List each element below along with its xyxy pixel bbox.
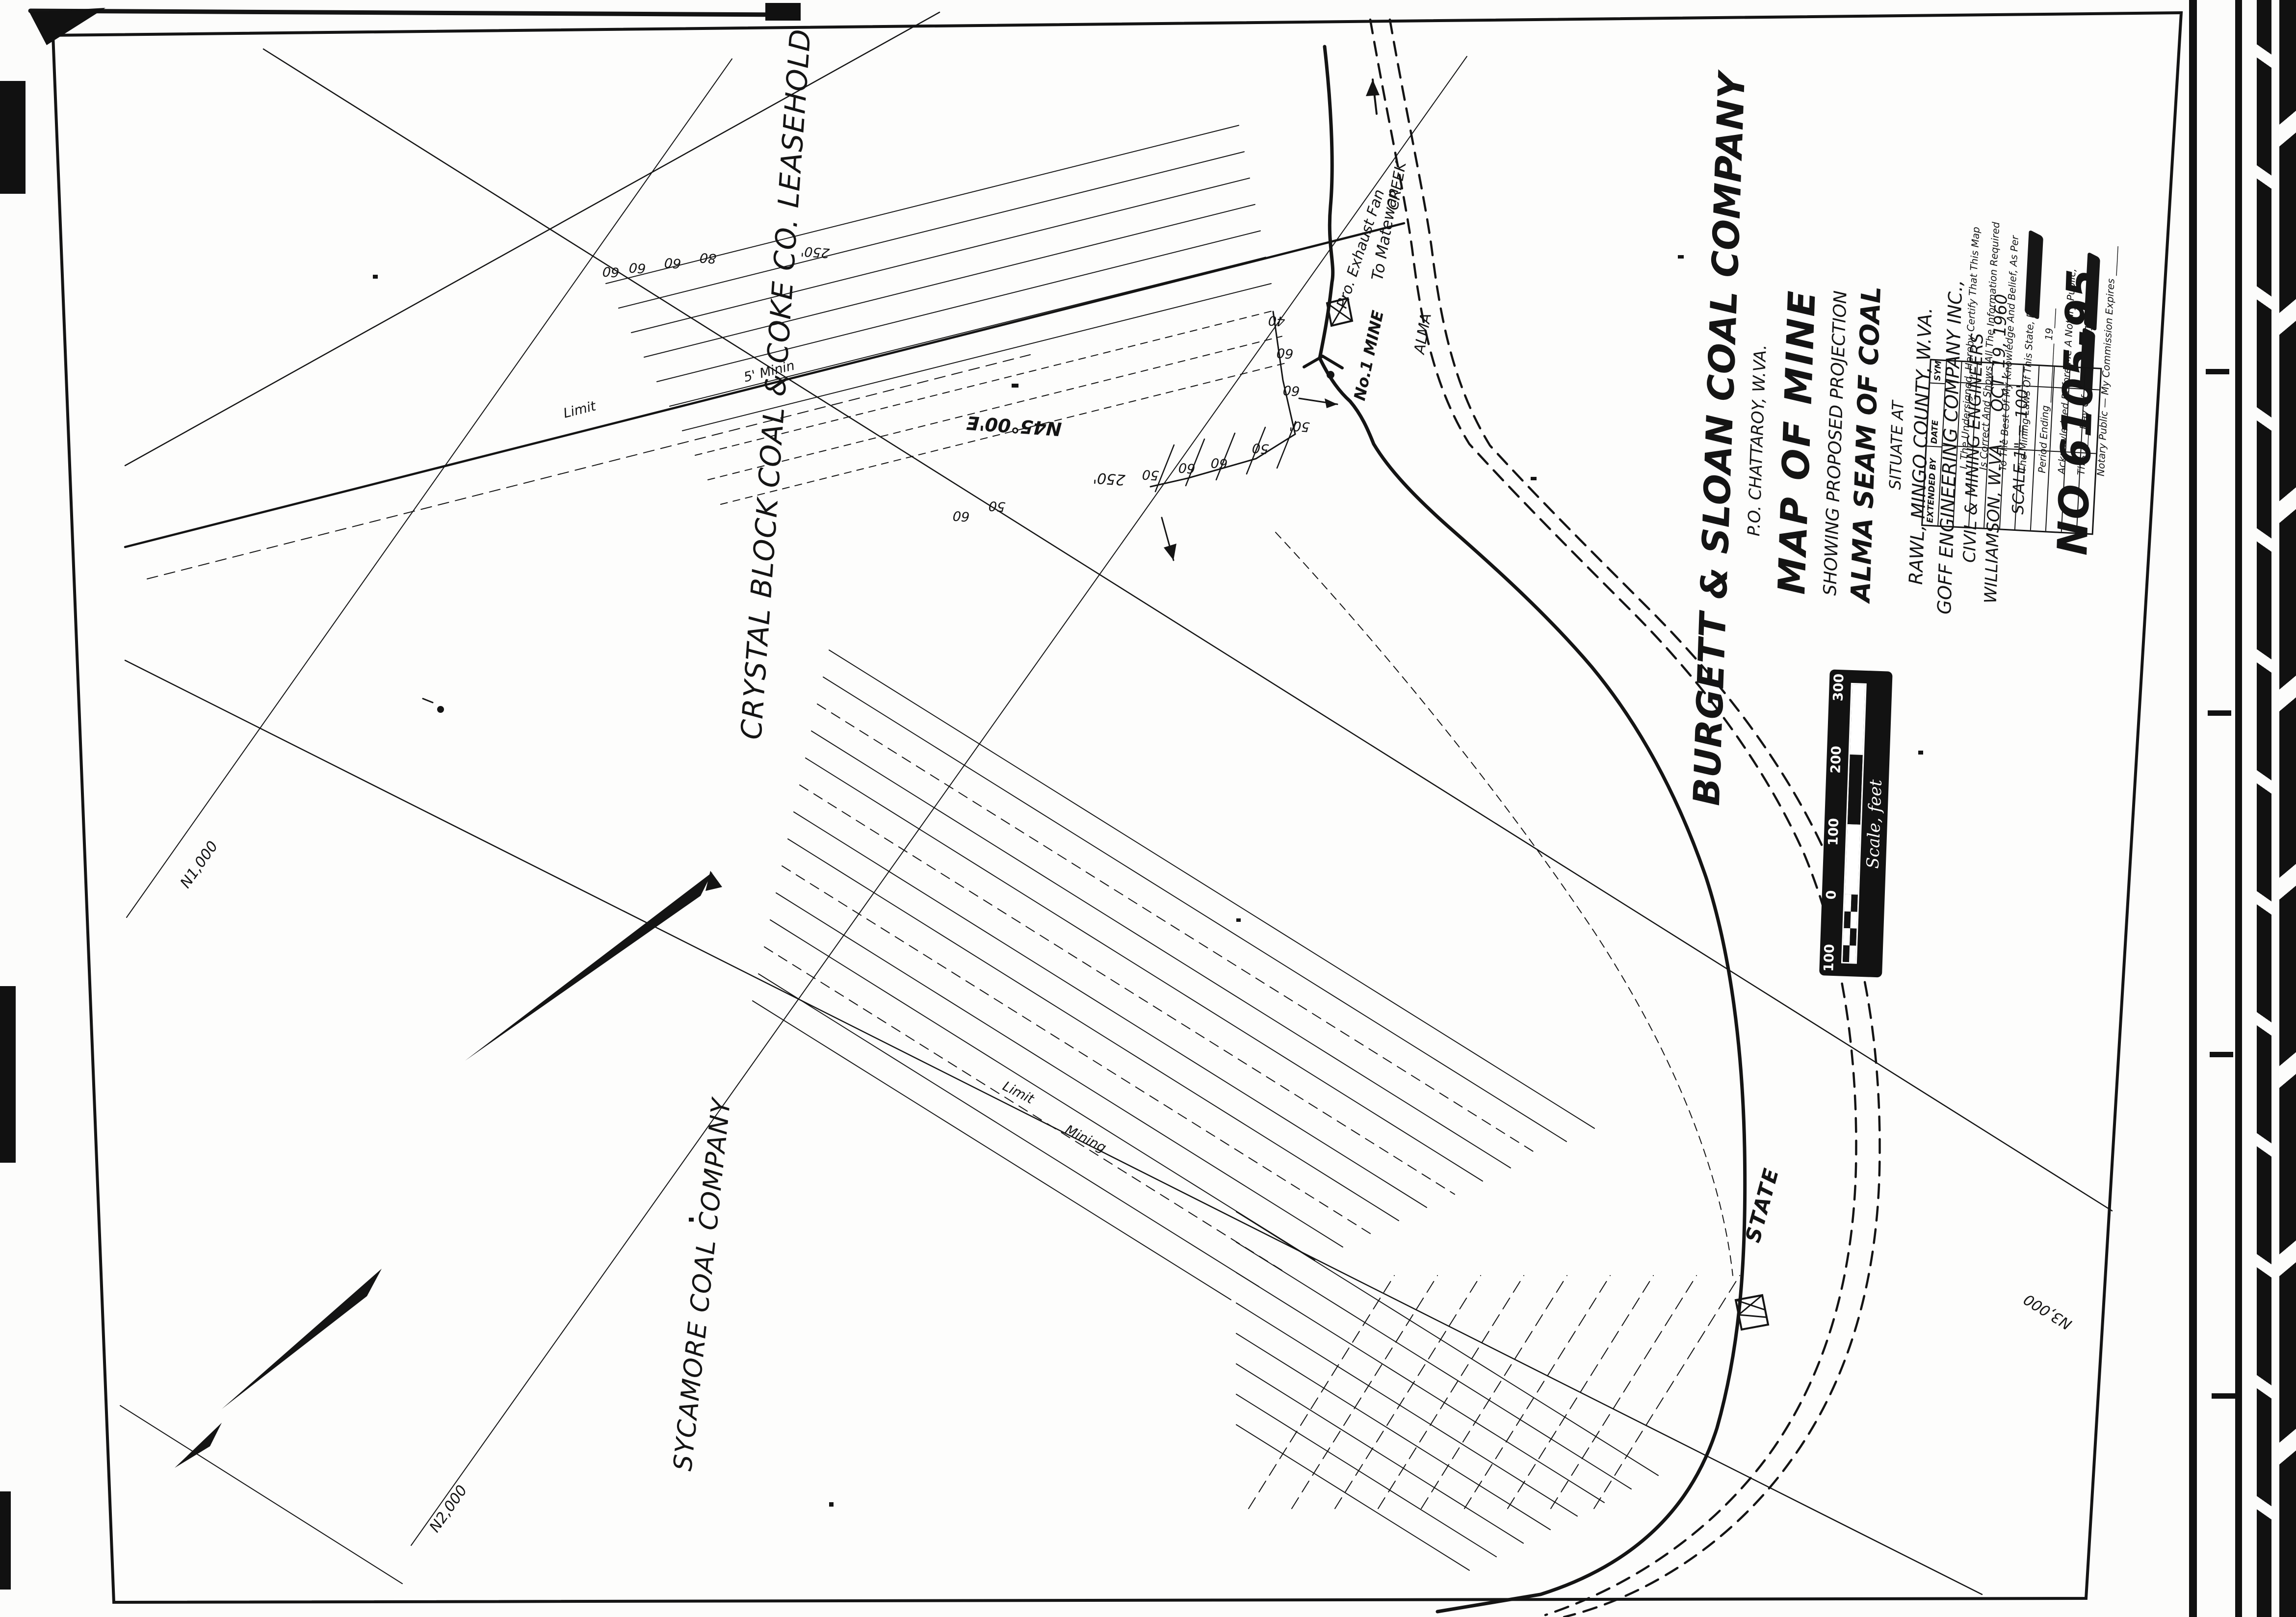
- pillar-number: 50: [1142, 467, 1159, 483]
- distance-label: 250': [800, 243, 830, 261]
- film-edge-band: [2279, 0, 2296, 1617]
- pillar-number: 40: [1268, 313, 1285, 329]
- sprocket-mark: [2210, 1052, 2233, 1057]
- pillar-number: 60: [952, 508, 970, 524]
- pillar-number: 60: [1276, 345, 1294, 361]
- distance-label: 250': [1093, 469, 1126, 488]
- seam-name: ALMA SEAM OF COAL: [1845, 286, 1887, 602]
- pillar-number: 60: [602, 263, 620, 280]
- situate-at: SITUATE AT: [1886, 400, 1907, 490]
- pillar-number: 60: [628, 260, 646, 276]
- sprocket-mark: [2212, 1393, 2235, 1399]
- company-address: P.O. CHATTAROY, W.VA.: [1744, 344, 1771, 536]
- film-edge-band: [2257, 0, 2271, 1617]
- pillar-number: 60: [1282, 382, 1300, 398]
- map-title: MAP OF MINE: [1770, 288, 1824, 595]
- scan-blemish: [0, 81, 26, 194]
- sprocket-mark: [2206, 369, 2229, 374]
- pillar-number: 50: [1252, 440, 1269, 456]
- film-edge-band: [2189, 0, 2197, 1617]
- pillar-number: 60: [664, 255, 681, 271]
- scan-blemish: [0, 986, 16, 1163]
- scan-blemish: [0, 1491, 11, 1590]
- pillar-number: 50: [988, 498, 1006, 514]
- pillar-number: 80: [699, 250, 717, 266]
- scale-bar: 1000100200300 Scale, feet: [1819, 669, 1893, 977]
- scanned-mine-map: BURGETT & SLOAN COAL COMPANY P.O. CHATTA…: [0, 0, 2296, 1617]
- sprocket-mark: [2208, 710, 2231, 716]
- pillar-number: 60: [1210, 455, 1228, 471]
- col-sym: SYM: [1930, 361, 1946, 384]
- revision-table: EXTENDED BY DATE SYM: [1921, 359, 2102, 535]
- film-edge-band: [2235, 0, 2242, 1617]
- pillar-number: 60: [1178, 460, 1196, 476]
- pillar-number: 50': [1289, 418, 1310, 435]
